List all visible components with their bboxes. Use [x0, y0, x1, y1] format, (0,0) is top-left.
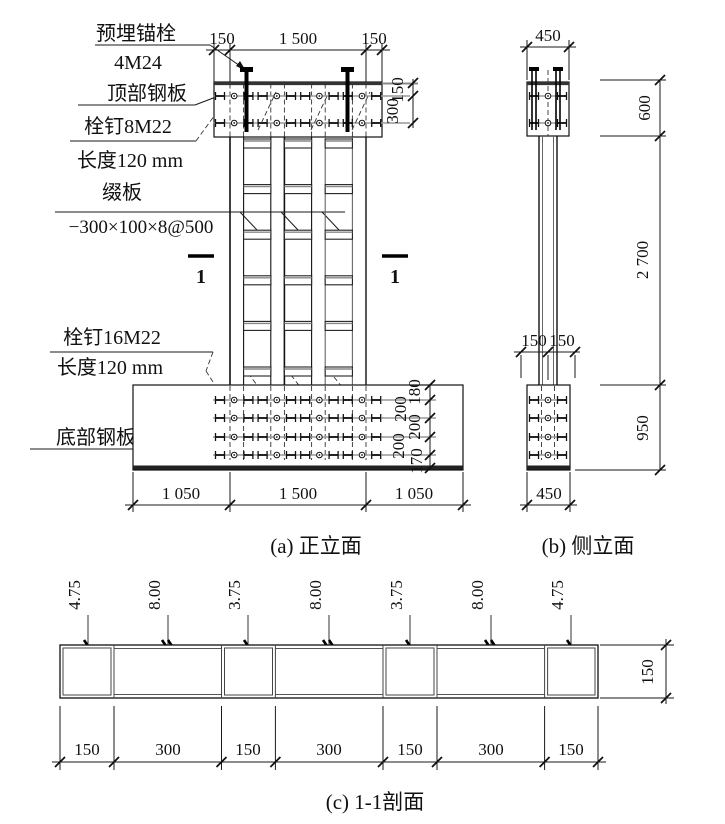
dim-label: 170 — [407, 448, 426, 474]
dim-label: 950 — [633, 415, 652, 441]
label-batten: 缀板 — [102, 181, 142, 204]
dim-label: 150 — [397, 740, 423, 759]
thickness-label: 3.75 — [225, 580, 244, 610]
anchor-bolt-head — [553, 67, 563, 71]
side-base-block — [527, 385, 570, 470]
dim-label: 450 — [535, 26, 561, 45]
front-elevation: 150 1 500 150 预埋锚栓 4M24 顶部钢板 栓钉8M22 长度12… — [30, 22, 471, 558]
label-anchor-bolt-spec: 4M24 — [114, 52, 162, 74]
dim-label: 1 500 — [279, 484, 317, 503]
section-mark-number: 1 — [390, 266, 400, 288]
structural-drawing-page: 150 1 500 150 预埋锚栓 4M24 顶部钢板 栓钉8M22 长度12… — [0, 0, 725, 819]
label-stud-bottom-length: 长度120 mm — [57, 356, 164, 379]
dim-label: 300 — [478, 740, 504, 759]
thickness-label: 8.00 — [145, 580, 164, 610]
lattice-column-chords — [230, 137, 366, 385]
structural-drawing: 150 1 500 150 预埋锚栓 4M24 顶部钢板 栓钉8M22 长度12… — [0, 0, 725, 819]
section-thickness-callouts: 4.75 8.00 3.75 8.00 3.75 8.00 4.75 — [65, 580, 575, 652]
dim-label: 1 050 — [395, 484, 433, 503]
dim-label: 150 — [549, 331, 575, 350]
section-bottom-dimension: 150 300 150 300 150 300 150 — [52, 706, 606, 770]
dim-label: 300 — [316, 740, 342, 759]
label-batten-spec: −300×100×8@500 — [69, 217, 214, 238]
dim-label: 300 — [155, 740, 181, 759]
section-mark-number: 1 — [196, 266, 206, 288]
dim-label: 150 — [361, 29, 387, 48]
section-right-dimension: 150 — [600, 639, 674, 704]
label-stud-top: 栓钉8M22 — [84, 115, 172, 138]
anchor-bolt-head — [341, 67, 354, 72]
dim-label: 150 — [521, 331, 547, 350]
front-bottom-dimension: 1 050 1 500 1 050 — [125, 472, 471, 512]
label-anchor-bolt: 预埋锚栓 — [96, 22, 176, 45]
thickness-label: 3.75 — [387, 580, 406, 610]
front-plate-right-dimension: 150 300 — [383, 77, 418, 128]
thickness-label: 8.00 — [306, 580, 325, 610]
label-bottom-plate: 底部钢板 — [56, 426, 136, 449]
thickness-label: 8.00 — [468, 580, 487, 610]
side-right-dimension: 600 2 700 950 — [575, 75, 666, 475]
dim-label: 200 — [389, 433, 408, 459]
thickness-label: 4.75 — [65, 580, 84, 610]
anchor-bolt-head — [529, 67, 539, 71]
side-top-plate — [527, 67, 569, 136]
dim-label: 1 500 — [279, 29, 317, 48]
dim-label: 300 — [383, 98, 402, 124]
dim-label: 150 — [558, 740, 584, 759]
label-top-plate: 顶部钢板 — [107, 82, 187, 105]
front-top-dimension: 150 1 500 150 — [206, 29, 390, 82]
dim-label: 2 700 — [633, 241, 652, 279]
section-mark-left: 1 — [188, 256, 214, 288]
side-elevation: 450 15 — [514, 26, 666, 558]
batten-plates — [244, 139, 353, 376]
dim-label: 1 050 — [162, 484, 200, 503]
label-stud-top-length: 长度120 mm — [77, 149, 184, 172]
dim-label: 150 — [74, 740, 100, 759]
section-view: 4.75 8.00 3.75 8.00 3.75 8.00 4.75 — [52, 580, 674, 814]
section-body — [60, 645, 598, 698]
side-bottom-dimension: 450 — [520, 472, 577, 512]
section-caption: (c) 1-1剖面 — [326, 790, 425, 814]
dim-label: 150 — [235, 740, 261, 759]
dim-label: 450 — [536, 484, 562, 503]
dim-label: 150 — [638, 659, 657, 685]
front-caption: (a) 正立面 — [270, 534, 362, 558]
dim-label: 150 — [209, 29, 235, 48]
label-stud-bottom: 栓钉16M22 — [63, 326, 161, 349]
side-caption: (b) 侧立面 — [542, 534, 635, 558]
section-mark-right: 1 — [382, 256, 408, 288]
thickness-label: 4.75 — [548, 580, 567, 610]
dim-label: 600 — [635, 95, 654, 121]
anchor-bolt-head — [240, 67, 253, 72]
side-mid-dimension: 150 150 — [514, 331, 580, 380]
